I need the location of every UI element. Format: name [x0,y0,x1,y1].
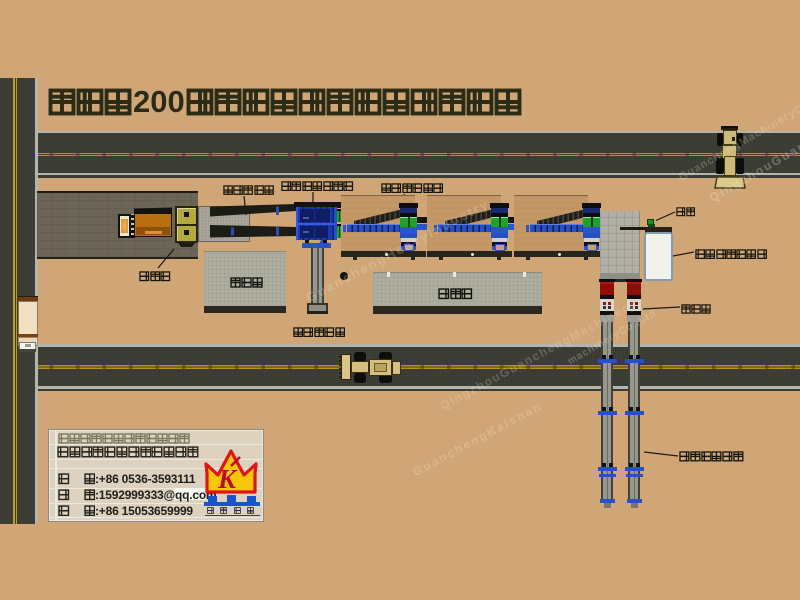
svg-text:K: K [217,464,238,494]
